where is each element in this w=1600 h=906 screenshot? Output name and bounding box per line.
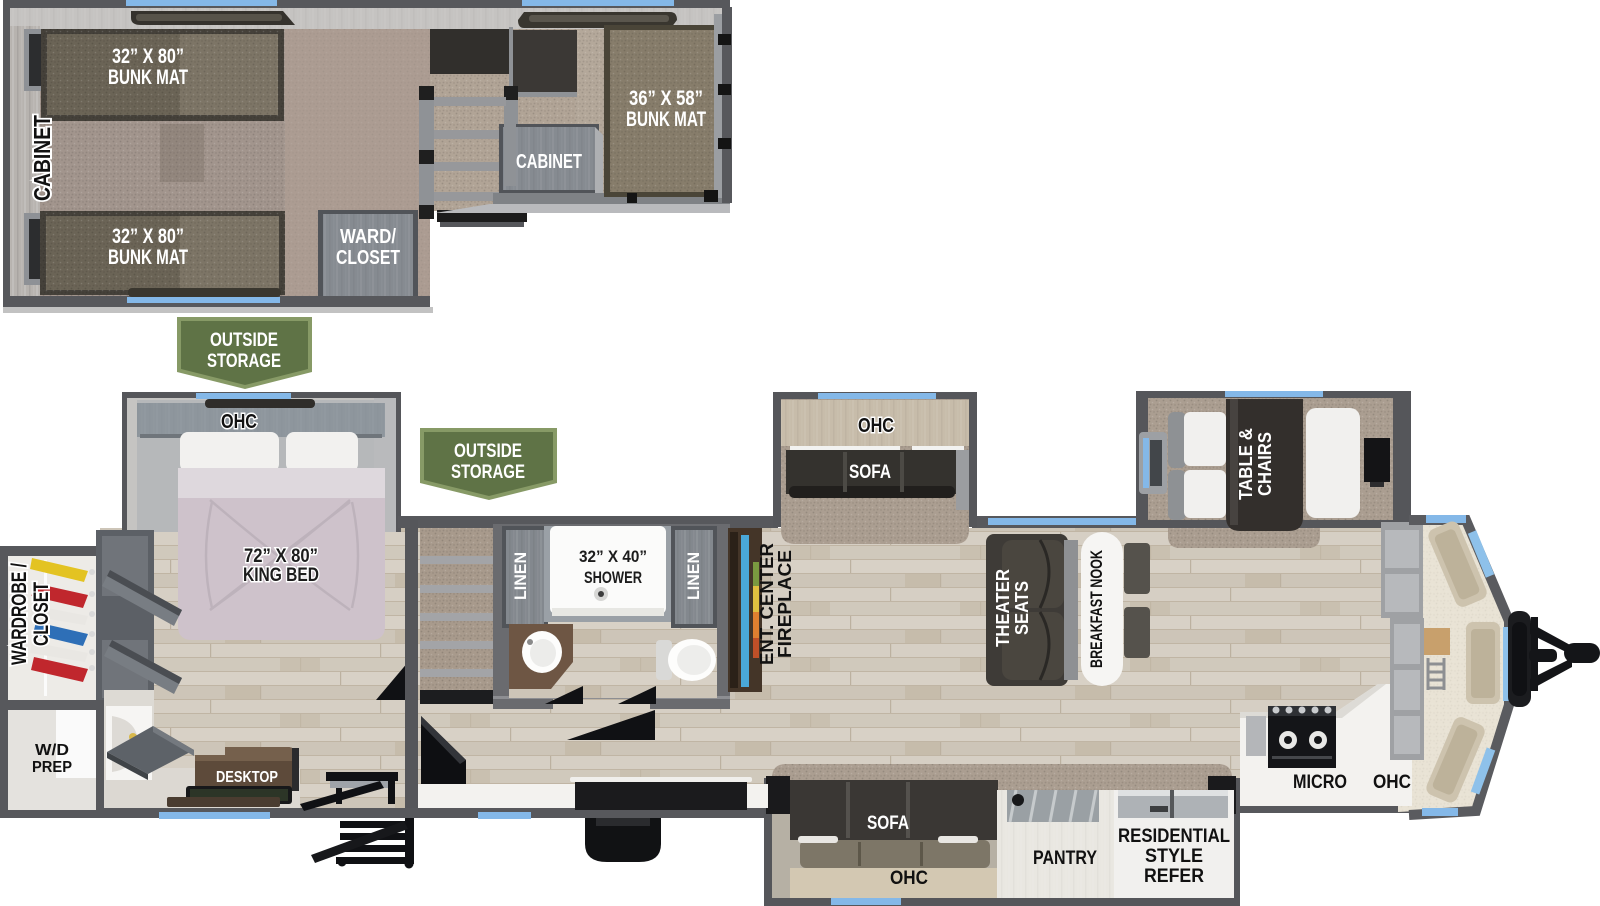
svg-text:32” X 80”: 32” X 80” bbox=[112, 225, 184, 248]
svg-text:DESKTOP: DESKTOP bbox=[216, 769, 278, 786]
svg-text:STORAGE: STORAGE bbox=[451, 462, 525, 483]
svg-text:PANTRY: PANTRY bbox=[1033, 848, 1097, 869]
svg-text:OUTSIDE: OUTSIDE bbox=[210, 330, 278, 351]
svg-text:36” X 58”: 36” X 58” bbox=[629, 87, 703, 110]
svg-text:OUTSIDE: OUTSIDE bbox=[454, 441, 522, 462]
svg-text:SEATS: SEATS bbox=[1012, 581, 1032, 635]
svg-text:BREAKFAST NOOK: BREAKFAST NOOK bbox=[1087, 549, 1106, 668]
svg-text:FIREPLACE: FIREPLACE bbox=[775, 550, 795, 658]
svg-text:LINEN: LINEN bbox=[511, 552, 530, 600]
svg-text:CABINET: CABINET bbox=[29, 115, 55, 201]
svg-text:32” X 80”: 32” X 80” bbox=[112, 45, 184, 68]
svg-text:SHOWER: SHOWER bbox=[584, 568, 642, 587]
svg-text:REFER: REFER bbox=[1144, 866, 1204, 887]
svg-text:CLOSET: CLOSET bbox=[336, 247, 400, 269]
svg-text:BUNK MAT: BUNK MAT bbox=[108, 246, 188, 269]
svg-text:CLOSET: CLOSET bbox=[30, 582, 53, 646]
svg-text:OHC: OHC bbox=[858, 415, 894, 437]
svg-text:SOFA: SOFA bbox=[849, 462, 891, 483]
svg-text:MICRO: MICRO bbox=[1293, 772, 1347, 793]
svg-text:STYLE: STYLE bbox=[1145, 846, 1203, 867]
svg-text:BUNK MAT: BUNK MAT bbox=[108, 66, 188, 89]
svg-text:TABLE &: TABLE & bbox=[1236, 428, 1256, 500]
svg-text:OHC: OHC bbox=[221, 411, 257, 433]
svg-text:72” X 80”: 72” X 80” bbox=[244, 546, 318, 567]
svg-text:CHAIRS: CHAIRS bbox=[1255, 432, 1275, 496]
svg-text:OHC: OHC bbox=[890, 868, 928, 889]
svg-text:WARDROBE /: WARDROBE / bbox=[8, 563, 31, 665]
svg-text:ENT. CENTER: ENT. CENTER bbox=[757, 543, 777, 665]
svg-text:32” X 40”: 32” X 40” bbox=[579, 547, 647, 566]
svg-text:SOFA: SOFA bbox=[867, 813, 909, 834]
svg-text:BUNK MAT: BUNK MAT bbox=[626, 108, 706, 131]
svg-text:LINEN: LINEN bbox=[684, 552, 703, 600]
svg-text:KING BED: KING BED bbox=[243, 565, 319, 586]
svg-text:W/D: W/D bbox=[35, 742, 69, 759]
svg-text:RESIDENTIAL: RESIDENTIAL bbox=[1118, 826, 1230, 847]
svg-text:PREP: PREP bbox=[32, 759, 72, 776]
svg-text:OHC: OHC bbox=[1373, 772, 1411, 793]
svg-text:THEATER: THEATER bbox=[993, 569, 1013, 647]
svg-text:CABINET: CABINET bbox=[516, 151, 582, 173]
svg-text:STORAGE: STORAGE bbox=[207, 351, 281, 372]
svg-text:WARD/: WARD/ bbox=[340, 226, 396, 248]
